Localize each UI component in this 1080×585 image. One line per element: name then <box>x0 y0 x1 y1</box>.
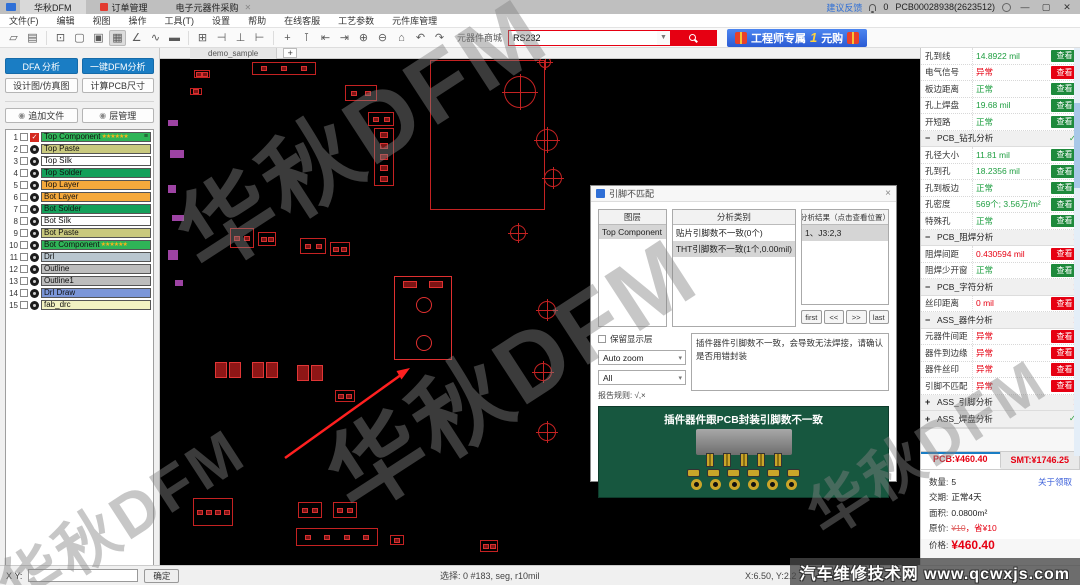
layer-name: Bot Paste <box>44 229 79 237</box>
window-tab-订单管理[interactable]: 订单管理 <box>86 0 162 14</box>
quote-panel: PCB:¥460.40 SMT:¥1746.25 数量: 5 关于领取 交期: … <box>921 451 1080 539</box>
category-item[interactable]: THT引脚数不一致(1个,0.00mil) <box>673 241 795 257</box>
smd-pad <box>707 469 720 477</box>
layer-row-Top Layer[interactable]: 5Top Layer <box>6 179 153 191</box>
print-icon[interactable]: ▤ <box>24 30 41 46</box>
layer-number: 2 <box>8 145 18 154</box>
select-icon[interactable]: ▢ <box>71 30 88 46</box>
check-value: 异常 <box>973 329 1049 345</box>
search-input[interactable] <box>509 31 657 45</box>
layer-active-icon: ✓ <box>30 133 39 142</box>
layer-number: 6 <box>8 193 18 202</box>
toolbar-separator <box>188 31 189 45</box>
panel-scrollbar[interactable] <box>1074 48 1080 456</box>
layer-color-bar[interactable]: Outline1 <box>41 276 151 286</box>
layer-number: 13 <box>8 277 18 286</box>
layer-number: 4 <box>8 169 18 178</box>
check-row-孔密度: 孔密度569个; 3.56万/m²查看 <box>921 197 1080 214</box>
layer-visibility-icon[interactable] <box>30 157 39 166</box>
dfa-analyze-button[interactable]: DFA 分析 <box>5 58 78 74</box>
layer-row-Outline1[interactable]: 13Outline1 <box>6 275 153 287</box>
layer-list: 1✓Top Component★★★★★★≡2Top Paste3Top Sil… <box>5 129 154 569</box>
layer-visibility-icon[interactable] <box>30 205 39 214</box>
layer-color-bar[interactable]: Bot Solder <box>41 204 151 214</box>
zoom-in-icon[interactable]: ⊕ <box>355 30 372 46</box>
check-label: 孔到孔 <box>921 164 973 180</box>
add-file-icon: ◉ <box>18 111 25 120</box>
layer-number: 10 <box>8 241 18 250</box>
layer-checkbox[interactable] <box>20 133 28 141</box>
expand-icon[interactable]: + <box>925 397 933 407</box>
original-price-label: 原价: <box>929 522 948 534</box>
layer-menu-icon[interactable]: ≡ <box>144 133 148 141</box>
check-row-丝印距离: 丝印距离0 mil查看 <box>921 296 1080 313</box>
selection-info: 选择: 0 #183, seg, r10mil <box>440 569 540 582</box>
layer-manager-button[interactable]: ◉层管理 <box>82 108 155 123</box>
layer-number: 1 <box>8 133 18 142</box>
dialog-titlebar[interactable]: 引脚不匹配 × <box>591 186 896 202</box>
tht-pad <box>748 479 759 490</box>
layer-row-Bot Silk[interactable]: 8Bot Silk <box>6 215 153 227</box>
check-row-板边距离: 板边距离正常查看 <box>921 81 1080 98</box>
check-label: 板边距离 <box>921 81 973 97</box>
connector-body <box>696 429 792 455</box>
section-label: PCB_字符分析 <box>937 281 993 293</box>
layer-name: Top Solder <box>44 169 82 177</box>
layer-checkbox[interactable] <box>20 169 28 177</box>
layer-color-bar[interactable]: Bot Paste <box>41 228 151 238</box>
titlebar: 华秋DFM订单管理电子元器件采购✕ 建议反馈 0 PCB00028938(262… <box>0 0 1080 14</box>
area-label: 面积: <box>929 507 948 519</box>
layer-color-bar[interactable]: fab_drc <box>41 300 151 310</box>
check-row-阻焊少开窗: 阻焊少开窗正常查看 <box>921 263 1080 280</box>
layer-name: Top Paste <box>44 145 80 153</box>
layer-visibility-icon[interactable] <box>30 229 39 238</box>
section-ASS_器件分析[interactable]: −ASS_器件分析! <box>921 312 1080 329</box>
category-column: 分析类别 贴片引脚数不一致(0个)THT引脚数不一致(1个,0.00mil) <box>672 209 796 327</box>
layer-name: Outline1 <box>44 277 74 285</box>
check-value: 0 mil <box>973 296 1049 312</box>
menu-操作[interactable]: 操作 <box>120 14 156 27</box>
check-label: 器件丝印 <box>921 362 973 378</box>
issue-illustration: 插件器件跟PCB封装引脚数不一致 <box>598 406 889 498</box>
check-label: 引脚不匹配 <box>921 378 973 394</box>
savings-value: ，省¥10 <box>966 522 997 534</box>
check-value: 19.68 mil <box>973 98 1049 114</box>
check-value: 正常 <box>973 213 1049 229</box>
layer-number: 5 <box>8 181 18 190</box>
align-bottom-icon[interactable]: ⊥ <box>232 30 249 46</box>
layer-number: 11 <box>8 253 18 262</box>
menu-编辑[interactable]: 编辑 <box>48 14 84 27</box>
area-value: 0.0800m² <box>951 508 987 518</box>
original-price-value: ¥10 <box>951 523 965 533</box>
canvas-tab-demo-sample[interactable]: demo_sample <box>190 48 277 59</box>
result-column-header: 分析结果（点击查看位置） <box>802 210 888 225</box>
layer-name: Top Component <box>44 133 100 141</box>
layer-row-Bot Solder[interactable]: 7Bot Solder <box>6 203 153 215</box>
layer-visibility-icon[interactable] <box>30 169 39 178</box>
search-icon <box>689 34 696 41</box>
banner-number: 1 <box>810 30 817 45</box>
layer-checkbox[interactable] <box>20 301 28 309</box>
dialog-close-icon[interactable]: × <box>885 188 891 199</box>
layer-name: Bot Solder <box>44 205 81 213</box>
layer-checkbox[interactable] <box>20 277 28 285</box>
crop-icon[interactable]: ▣ <box>90 30 107 46</box>
app-icon <box>6 3 16 11</box>
nav-first-button[interactable]: first <box>801 310 822 324</box>
filter-select[interactable]: All <box>598 370 686 385</box>
collapse-icon[interactable]: − <box>925 133 933 143</box>
align-right-icon[interactable]: ⊢ <box>251 30 268 46</box>
add-canvas-tab-button[interactable]: + <box>283 48 297 58</box>
check-row-器件到边缘: 器件到边缘异常查看 <box>921 345 1080 362</box>
layer-name: Bot Silk <box>44 217 71 225</box>
chevron-down-icon[interactable]: ▼ <box>657 34 670 41</box>
section-ASS_引脚分析[interactable]: +ASS_引脚分析! <box>921 395 1080 412</box>
illustration-title: 插件器件跟PCB封装引脚数不一致 <box>599 412 888 427</box>
connector-pin <box>774 453 782 467</box>
zoom-window-icon[interactable]: ⊡ <box>52 30 69 46</box>
collapse-icon[interactable]: − <box>925 232 933 242</box>
calc-pcb-size-button[interactable]: 计算PCB尺寸 <box>82 78 155 93</box>
menu-视图[interactable]: 视图 <box>84 14 120 27</box>
layer-visibility-icon[interactable] <box>30 289 39 298</box>
connector-pin <box>757 453 765 467</box>
layer-checkbox[interactable] <box>20 265 28 273</box>
check-value: 正常 <box>973 263 1049 279</box>
category-column-header: 分析类别 <box>673 210 795 225</box>
layer-checkbox[interactable] <box>20 229 28 237</box>
check-label: 阻焊间距 <box>921 246 973 262</box>
layer-color-bar[interactable]: Top Silk <box>41 156 151 166</box>
window-tab-电子元器件采购[interactable]: 电子元器件采购✕ <box>162 0 266 14</box>
check-row-特殊孔: 特殊孔正常查看 <box>921 213 1080 230</box>
result-nav: first<<>>last <box>801 310 889 324</box>
layer-checkbox[interactable] <box>20 217 28 225</box>
dialog-title: 引脚不匹配 <box>609 187 654 200</box>
tab-pcb-price[interactable]: PCB:¥460.40 <box>921 452 1001 469</box>
layer-name: Top Layer <box>44 181 79 189</box>
section-label: PCB_阻焊分析 <box>937 231 993 243</box>
layer-visibility-icon[interactable] <box>30 241 39 250</box>
layer-color-bar[interactable]: Outline <box>41 264 151 274</box>
menu-工具(T)[interactable]: 工具(T) <box>156 14 204 27</box>
pan-right-icon[interactable]: ⇥ <box>336 30 353 46</box>
order-number: PCB00028938(2623512) <box>895 2 995 12</box>
check-label: 特殊孔 <box>921 213 973 229</box>
nav-<<-button[interactable]: << <box>824 310 845 324</box>
layer-column-header: 图层 <box>599 210 666 225</box>
check-value: 异常 <box>973 345 1049 361</box>
check-value: 异常 <box>973 362 1049 378</box>
feedback-link[interactable]: 建议反馈 <box>826 1 862 14</box>
issue-description: 插件器件引脚数不一致，会导致无法焊接，请确认是否用错封装 <box>691 333 889 391</box>
layer-checkbox[interactable] <box>20 145 28 153</box>
order-icon <box>100 3 108 11</box>
pan-left-icon[interactable]: ⇤ <box>317 30 334 46</box>
layer-row-Bot Component[interactable]: 10Bot Component★★★★★★ <box>6 239 153 251</box>
design-sim-button[interactable]: 设计图/仿真图 <box>5 78 78 93</box>
layer-visibility-icon[interactable] <box>30 277 39 286</box>
layer-number: 9 <box>8 229 18 238</box>
layer-checkbox[interactable] <box>20 157 28 165</box>
report-rule-label: 报告规则: √,× <box>598 390 686 401</box>
origin-icon[interactable]: + <box>279 30 296 46</box>
layer-number: 8 <box>8 217 18 226</box>
layer-number: 7 <box>8 205 18 214</box>
collapse-icon[interactable]: − <box>925 282 933 292</box>
layer-name: Bot Component <box>44 241 100 249</box>
scrollbar-thumb[interactable] <box>1074 103 1080 188</box>
layer-visibility-icon[interactable] <box>30 217 39 226</box>
section-PCB_字符分析[interactable]: −PCB_字符分析! <box>921 279 1080 296</box>
layer-color-bar[interactable]: Top Paste <box>41 144 151 154</box>
canvas-tab-strip: demo_sample + <box>160 48 920 59</box>
window-tabs: 华秋DFM订单管理电子元器件采购✕ <box>20 0 265 14</box>
section-label: ASS_焊盘分析 <box>937 413 993 425</box>
menu-元件库管理[interactable]: 元件库管理 <box>383 14 446 27</box>
market-label: 元器件商城 <box>457 31 502 44</box>
layer-checkbox[interactable] <box>20 241 28 249</box>
layer-number: 14 <box>8 289 18 298</box>
layer-checkbox[interactable] <box>20 205 28 213</box>
layer-name: Outline <box>44 265 69 273</box>
section-PCB_钻孔分析[interactable]: −PCB_钻孔分析✓ <box>921 131 1080 148</box>
tht-pads <box>599 479 888 490</box>
check-label: 孔密度 <box>921 197 973 213</box>
layer-column: 图层 Top Component <box>598 209 667 327</box>
smd-pad <box>747 469 760 477</box>
check-label: 丝印距离 <box>921 296 973 312</box>
layer-stars: ★★★★★★ <box>101 133 127 141</box>
tab-smt-price[interactable]: SMT:¥1746.25 <box>1001 452 1080 469</box>
layer-row-Drl Draw[interactable]: 14Drl Draw <box>6 287 153 299</box>
layer-row-Outline[interactable]: 12Outline <box>6 263 153 275</box>
layer-visibility-icon[interactable] <box>30 301 39 310</box>
check-value: 异常 <box>973 378 1049 394</box>
layer-color-bar[interactable]: Top Layer <box>41 180 151 190</box>
menubar: 文件(F)编辑视图操作工具(T)设置帮助在线客服工艺参数元件库管理 <box>0 14 1080 28</box>
analysis-panel: 孔到线14.8922 mil查看电气信号异常查看板边距离正常查看孔上焊盘19.6… <box>920 48 1080 565</box>
layer-row-Top Paste[interactable]: 2Top Paste <box>6 143 153 155</box>
section-label: PCB_钻孔分析 <box>937 132 993 144</box>
check-row-孔上焊盘: 孔上焊盘19.68 mil查看 <box>921 98 1080 115</box>
board-view-icon[interactable]: ▦ <box>109 30 126 46</box>
analysis-results: 孔到线14.8922 mil查看电气信号异常查看板边距离正常查看孔上焊盘19.6… <box>921 48 1080 429</box>
check-row-孔到孔: 孔到孔18.2356 mil查看 <box>921 164 1080 181</box>
check-value: 569个; 3.56万/m² <box>973 197 1049 213</box>
keep-layer-checkbox[interactable] <box>598 335 606 343</box>
qty-label: 数量: <box>929 476 948 488</box>
check-value: 正常 <box>973 81 1049 97</box>
leadtime-value: 正常4天 <box>951 491 981 503</box>
section-label: ASS_器件分析 <box>937 314 993 326</box>
tht-pad <box>767 479 778 490</box>
toolbar: ▱▤⊡▢▣▦∠∿▬⊞⊣⊥⊢+⊺⇤⇥⊕⊖⌂↶↷ 元器件商城 ▼ 工程师专属 1 元… <box>0 28 1080 48</box>
tht-pad <box>729 479 740 490</box>
check-label: 阻焊少开窗 <box>921 263 973 279</box>
smd-pad <box>687 469 700 477</box>
notification-count: 0 <box>883 2 888 12</box>
check-value: 正常 <box>973 180 1049 196</box>
trace-icon[interactable]: ∿ <box>147 30 164 46</box>
pin-mismatch-dialog: 引脚不匹配 × 图层 Top Component 分析类别 贴片引脚数不一致(0… <box>590 185 897 482</box>
probe-icon[interactable]: ⊺ <box>298 30 315 46</box>
layer-name: Bot Layer <box>44 193 78 201</box>
tht-pad <box>786 479 797 490</box>
layer-row-fab_drc[interactable]: 15fab_drc <box>6 299 153 311</box>
dialog-icon <box>596 189 605 198</box>
layer-checkbox[interactable] <box>20 289 28 297</box>
layer-row-Bot Paste[interactable]: 9Bot Paste <box>6 227 153 239</box>
layer-checkbox[interactable] <box>20 193 28 201</box>
bell-icon[interactable] <box>869 4 876 11</box>
zoom-mode-select[interactable]: Auto zoom <box>598 350 686 365</box>
check-row-孔径大小: 孔径大小11.81 mil查看 <box>921 147 1080 164</box>
undo-icon[interactable]: ↶ <box>412 30 429 46</box>
promo-banner[interactable]: 工程师专属 1 元购 <box>727 29 867 47</box>
expand-icon[interactable]: + <box>925 414 933 424</box>
smd-pad <box>787 469 800 477</box>
maximize-button[interactable]: ▢ <box>1039 2 1053 13</box>
check-row-器件丝印: 器件丝印异常查看 <box>921 362 1080 379</box>
check-label: 元器件间距 <box>921 329 973 345</box>
layer-color-bar[interactable]: Bot Component★★★★★★ <box>41 240 151 250</box>
user-avatar-icon[interactable] <box>1002 3 1011 12</box>
home-icon[interactable]: ⌂ <box>393 30 410 46</box>
gift-box-icon <box>847 32 859 44</box>
measure-angle-icon[interactable]: ∠ <box>128 30 145 46</box>
check-row-孔到板边: 孔到板边正常查看 <box>921 180 1080 197</box>
layer-color-bar[interactable]: Top Component★★★★★★≡ <box>41 132 151 142</box>
align-left-icon[interactable]: ⊣ <box>213 30 230 46</box>
smd-pad <box>767 469 780 477</box>
connector-pin <box>740 453 748 467</box>
check-value: 0.430594 mil <box>973 246 1049 262</box>
section-label: ASS_引脚分析 <box>937 396 993 408</box>
check-value: 11.81 mil <box>973 147 1049 163</box>
menu-设置[interactable]: 设置 <box>203 14 239 27</box>
collapse-icon[interactable]: − <box>925 315 933 325</box>
layer-color-bar[interactable]: Bot Silk <box>41 216 151 226</box>
smd-pads <box>599 469 888 477</box>
layer-name: Top Silk <box>44 157 72 165</box>
menu-在线客服[interactable]: 在线客服 <box>275 14 329 27</box>
close-button[interactable]: ✕ <box>1060 2 1074 13</box>
search-button[interactable] <box>670 30 716 46</box>
window-tab-label: 华秋DFM <box>34 1 72 14</box>
confirm-button[interactable]: 确定 <box>144 569 179 583</box>
tht-pad <box>710 479 721 490</box>
connector-pins <box>599 453 888 467</box>
eraser-icon[interactable]: ▬ <box>166 30 183 46</box>
left-panel: DFA 分析 一键DFM分析 设计图/仿真图 计算PCB尺寸 ◉追加文件 ◉层管… <box>0 48 160 565</box>
layer-row-Top Component[interactable]: 1✓Top Component★★★★★★≡ <box>6 131 153 143</box>
pcb-canvas[interactable]: demo_sample + 引脚不匹配 × 图层 Top Component 分… <box>160 48 920 565</box>
layer-number: 3 <box>8 157 18 166</box>
window-tab-label: 电子元器件采购 <box>176 1 239 14</box>
about-claim-link[interactable]: 关于领取 <box>1038 476 1072 488</box>
nav-last-button[interactable]: last <box>869 310 890 324</box>
open-icon[interactable]: ▱ <box>5 30 22 46</box>
banner-text2: 元购 <box>821 30 843 46</box>
check-label: 孔到线 <box>921 48 973 64</box>
category-item[interactable]: 贴片引脚数不一致(0个) <box>673 225 795 241</box>
menu-工艺参数[interactable]: 工艺参数 <box>329 14 383 27</box>
layer-name: Drl <box>44 253 54 261</box>
layer-number: 15 <box>8 301 18 310</box>
layer-stars: ★★★★★★ <box>101 241 127 249</box>
result-column: 分析结果（点击查看位置） 1、J3:2,3 <box>801 209 889 305</box>
check-label: 器件到边缘 <box>921 345 973 361</box>
redo-icon[interactable]: ↷ <box>431 30 448 46</box>
section-PCB_阻焊分析[interactable]: −PCB_阻焊分析! <box>921 230 1080 247</box>
layer-color-bar[interactable]: Bot Layer <box>41 192 151 202</box>
append-file-button[interactable]: ◉追加文件 <box>5 108 78 123</box>
coordinate-input[interactable] <box>28 569 138 582</box>
banner-text: 工程师专属 <box>751 30 806 46</box>
minimize-button[interactable]: — <box>1018 2 1032 12</box>
keep-layer-label: 保留显示层 <box>610 333 653 345</box>
layer-color-bar[interactable]: Drl Draw <box>41 288 151 298</box>
layer-row-Top Solder[interactable]: 4Top Solder <box>6 167 153 179</box>
check-label: 电气信号 <box>921 65 973 81</box>
section-ASS_焊盘分析[interactable]: +ASS_焊盘分析✓ <box>921 411 1080 428</box>
qty-value: 5 <box>951 477 956 487</box>
leadtime-label: 交期: <box>929 491 948 503</box>
layer-item[interactable]: Top Component <box>599 225 666 239</box>
layer-row-Top Silk[interactable]: 3Top Silk <box>6 155 153 167</box>
red-envelope-icon <box>735 32 747 44</box>
connector-pin <box>723 453 731 467</box>
layer-visibility-icon[interactable] <box>30 181 39 190</box>
layer-name: Drl Draw <box>44 289 75 297</box>
zoom-out-icon[interactable]: ⊖ <box>374 30 391 46</box>
check-label: 孔径大小 <box>921 147 973 163</box>
menu-帮助[interactable]: 帮助 <box>239 14 275 27</box>
check-value: 18.2356 mil <box>973 164 1049 180</box>
check-value: 14.8922 mil <box>973 48 1049 64</box>
tht-pad <box>691 479 702 490</box>
check-row-阻焊间距: 阻焊间距0.430594 mil查看 <box>921 246 1080 263</box>
close-tab-icon[interactable]: ✕ <box>245 3 252 12</box>
check-value: 正常 <box>973 114 1049 130</box>
menu-文件(F)[interactable]: 文件(F) <box>0 14 48 27</box>
layer-visibility-icon[interactable] <box>30 193 39 202</box>
layer-checkbox[interactable] <box>20 181 28 189</box>
layer-visibility-icon[interactable] <box>30 265 39 274</box>
layer-color-bar[interactable]: Drl <box>41 252 151 262</box>
layer-number: 12 <box>8 265 18 274</box>
nav->>-button[interactable]: >> <box>846 310 867 324</box>
layer-row-Bot Layer[interactable]: 6Bot Layer <box>6 191 153 203</box>
grid-icon[interactable]: ⊞ <box>194 30 211 46</box>
layer-row-Drl[interactable]: 11Drl <box>6 251 153 263</box>
layer-checkbox[interactable] <box>20 253 28 261</box>
layer-visibility-icon[interactable] <box>30 145 39 154</box>
layer-color-bar[interactable]: Top Solder <box>41 168 151 178</box>
window-tab-label: 订单管理 <box>112 1 148 14</box>
check-label: 孔上焊盘 <box>921 98 973 114</box>
result-item[interactable]: 1、J3:2,3 <box>802 225 888 241</box>
dfm-analyze-button[interactable]: 一键DFM分析 <box>82 58 155 74</box>
window-tab-华秋DFM[interactable]: 华秋DFM <box>20 0 86 14</box>
layer-visibility-icon[interactable] <box>30 253 39 262</box>
xy-label: X Y: <box>6 571 22 581</box>
price-value: ¥460.40 <box>951 538 994 552</box>
